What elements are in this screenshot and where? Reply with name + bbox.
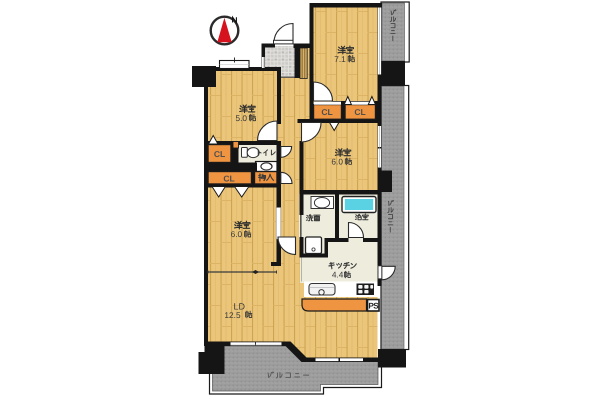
svg-text:4.4: 4.4 bbox=[332, 270, 344, 280]
svg-text:CL: CL bbox=[214, 149, 225, 159]
svg-text:CL: CL bbox=[321, 107, 332, 117]
svg-text:12.5: 12.5 bbox=[224, 310, 241, 320]
svg-text:6.0: 6.0 bbox=[231, 229, 243, 239]
svg-text:5.0: 5.0 bbox=[236, 113, 248, 123]
svg-text:6.0: 6.0 bbox=[331, 157, 343, 167]
svg-text:PS: PS bbox=[368, 301, 379, 310]
svg-text:CL: CL bbox=[223, 174, 234, 184]
svg-text:CL: CL bbox=[354, 107, 365, 117]
svg-text:7.1: 7.1 bbox=[334, 54, 346, 64]
